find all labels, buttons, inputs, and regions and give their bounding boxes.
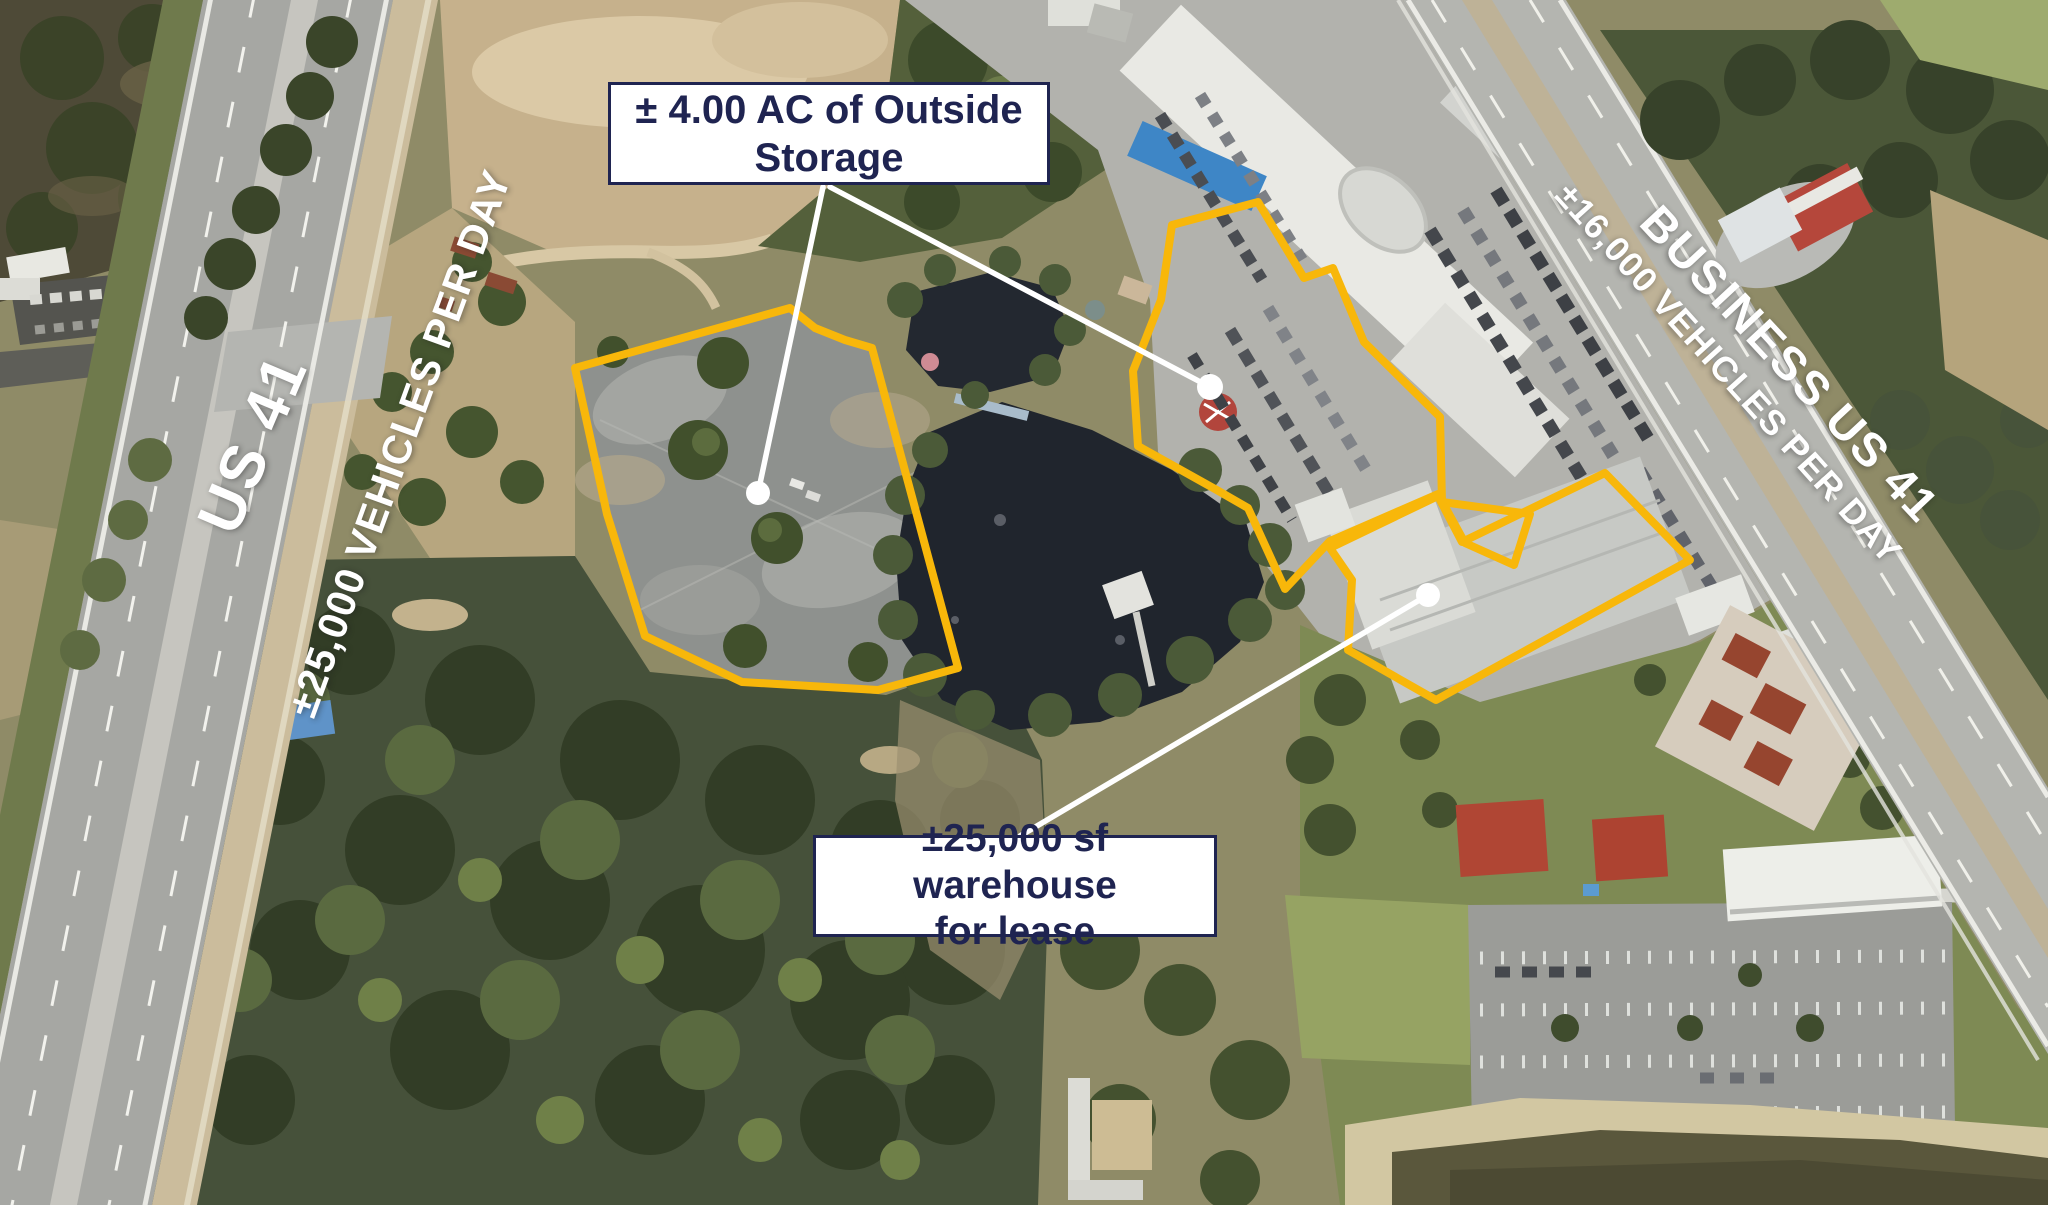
leader-line-outside-storage (830, 187, 1210, 387)
parcel-outline-warehouse (1330, 473, 1690, 700)
warehouse-lease-callout-line1: ±25,000 sf warehouse (816, 816, 1214, 910)
warehouse-lease-callout-line2: for lease (935, 909, 1095, 956)
warehouse-lease-callout: ±25,000 sf warehouse for lease (813, 835, 1217, 937)
marker-dot-warehouse (1416, 583, 1440, 607)
marker-dot-outside-storage (1197, 374, 1223, 400)
leader-line-storage-yard (758, 187, 823, 493)
marker-dot-storage-yard (746, 481, 770, 505)
parcel-outline-main-site (1133, 202, 1530, 589)
outside-storage-callout: ± 4.00 AC of Outside Storage (608, 82, 1050, 185)
aerial-site-photo: US 41 ±25,000 VEHICLES PER DAY BUSINESS … (0, 0, 2048, 1205)
outside-storage-callout-line1: ± 4.00 AC of Outside (635, 86, 1022, 134)
outside-storage-callout-line2: Storage (755, 134, 904, 182)
leader-line-warehouse (1020, 595, 1428, 836)
